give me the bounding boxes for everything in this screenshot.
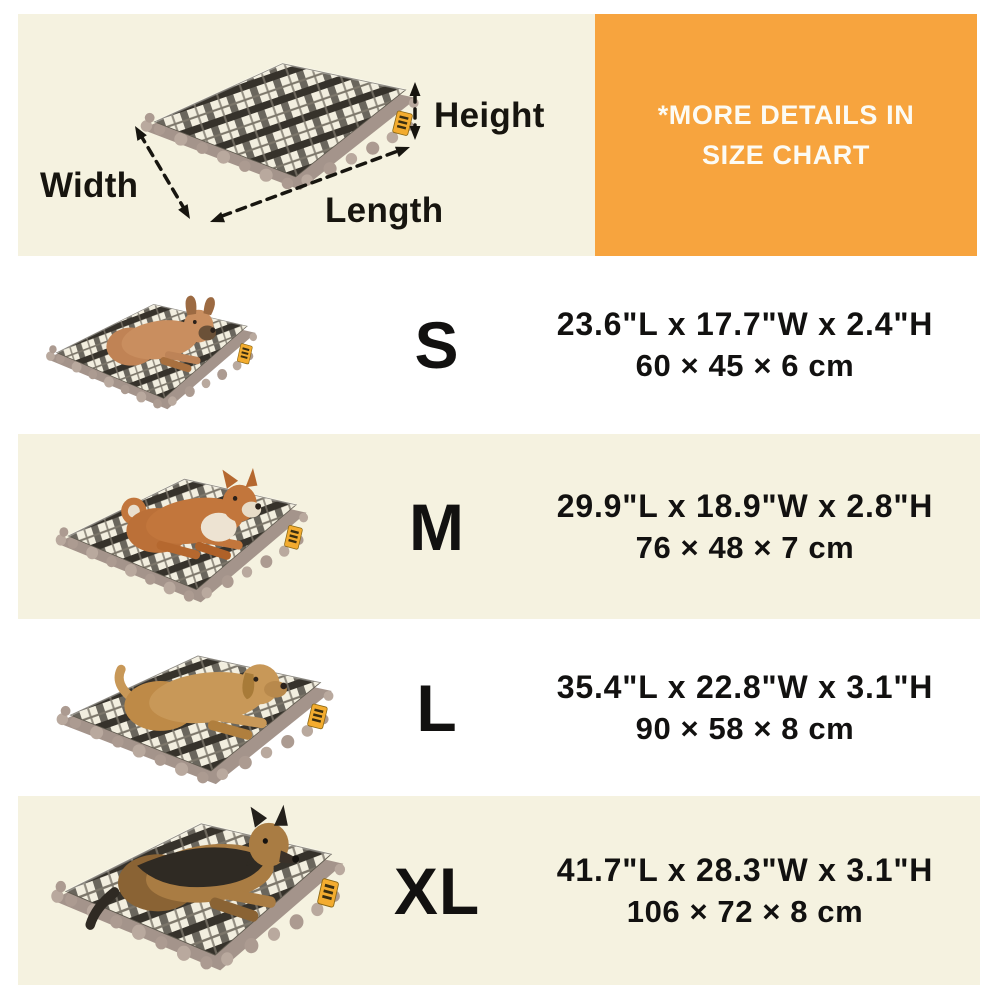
dog-bed-photo-s xyxy=(38,288,262,414)
size-letter-m: M xyxy=(372,434,502,619)
size-letter-s: S xyxy=(372,256,502,434)
more-details-banner: *MORE DETAILS IN SIZE CHART xyxy=(595,14,977,256)
dimensions-xl: 41.7"L x 28.3"W x 3.1"H 106 × 72 × 8 cm xyxy=(508,796,982,985)
size-row-xl: XL 41.7"L x 28.3"W x 3.1"H 106 × 72 × 8 … xyxy=(0,796,1000,985)
size-chart-infographic: Width Height Length *MORE DETAILS IN SIZ… xyxy=(0,0,1000,1000)
metric-dimensions-l: 90 × 58 × 8 cm xyxy=(636,708,855,750)
imperial-dimensions-m: 29.9"L x 18.9"W x 2.8"H xyxy=(557,485,933,527)
dimensions-l: 35.4"L x 22.8"W x 3.1"H 90 × 58 × 8 cm xyxy=(508,619,982,796)
height-label: Height xyxy=(434,96,545,136)
imperial-dimensions-l: 35.4"L x 22.8"W x 3.1"H xyxy=(557,666,933,708)
dog-bed-photo-l xyxy=(46,636,340,790)
banner-line-2: SIZE CHART xyxy=(702,135,870,175)
metric-dimensions-s: 60 × 45 × 6 cm xyxy=(636,345,855,387)
imperial-dimensions-xl: 41.7"L x 28.3"W x 3.1"H xyxy=(557,849,933,891)
length-label: Length xyxy=(325,191,443,231)
size-row-s: S 23.6"L x 17.7"W x 2.4"H 60 × 45 × 6 cm xyxy=(0,256,1000,434)
width-label: Width xyxy=(40,166,138,206)
banner-line-1: *MORE DETAILS IN xyxy=(658,95,915,135)
metric-dimensions-xl: 106 × 72 × 8 cm xyxy=(627,891,864,933)
size-row-l: L 35.4"L x 22.8"W x 3.1"H 90 × 58 × 8 cm xyxy=(0,619,1000,796)
imperial-dimensions-s: 23.6"L x 17.7"W x 2.4"H xyxy=(557,303,933,345)
metric-dimensions-m: 76 × 48 × 7 cm xyxy=(636,527,855,569)
dog-bed-photo-m xyxy=(46,460,314,608)
dimensions-m: 29.9"L x 18.9"W x 2.8"H 76 × 48 × 7 cm xyxy=(508,434,982,619)
dog-bed-photo-xl xyxy=(40,801,352,977)
dimensions-s: 23.6"L x 17.7"W x 2.4"H 60 × 45 × 6 cm xyxy=(508,256,982,434)
size-letter-l: L xyxy=(372,619,502,796)
size-row-m: M 29.9"L x 18.9"W x 2.8"H 76 × 48 × 7 cm xyxy=(0,434,1000,619)
size-letter-xl: XL xyxy=(372,796,502,985)
